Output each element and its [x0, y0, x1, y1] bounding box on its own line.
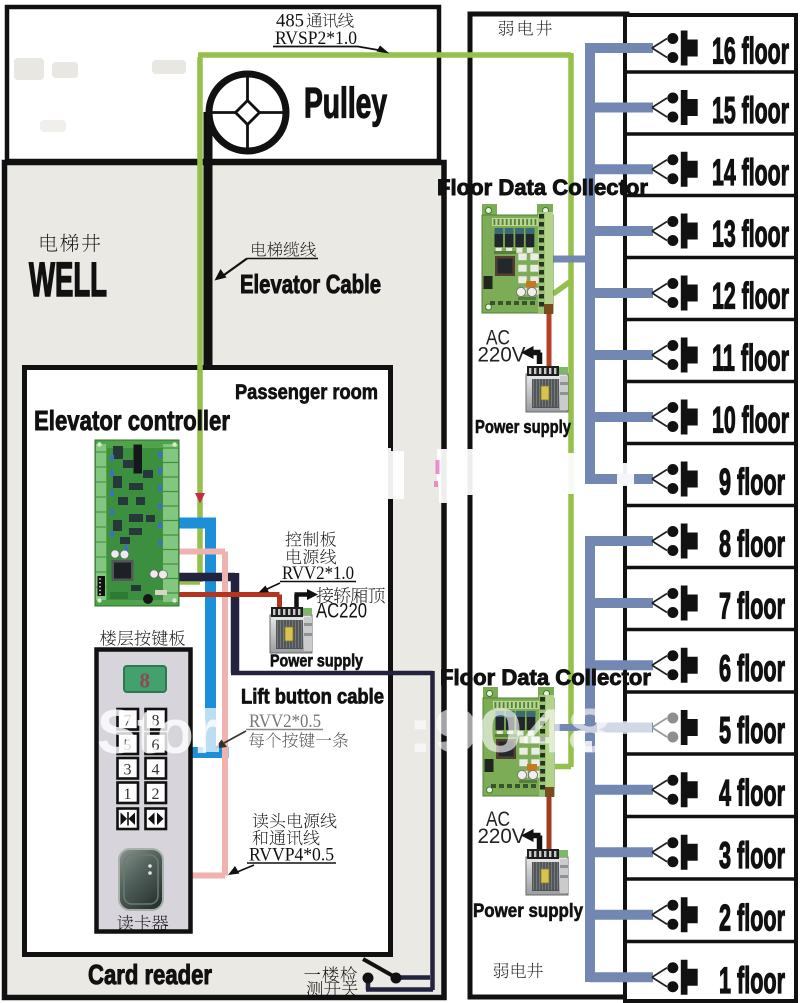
svg-text:WELL: WELL: [29, 254, 107, 307]
svg-text:220V: 220V: [478, 344, 526, 367]
svg-text:Power supply: Power supply: [473, 901, 583, 922]
svg-text:8: 8: [140, 669, 151, 693]
svg-text:6 floor: 6 floor: [719, 648, 785, 689]
svg-text:1 floor: 1 floor: [719, 960, 785, 1001]
svg-text:Power supply: Power supply: [270, 651, 363, 671]
svg-text:14 floor: 14 floor: [712, 152, 789, 193]
svg-text:Passenger room: Passenger room: [235, 380, 378, 404]
svg-text:220V: 220V: [478, 825, 526, 848]
svg-text:8 floor: 8 floor: [719, 524, 785, 565]
svg-text:10 floor: 10 floor: [712, 400, 789, 441]
svg-text:Stor: Stor: [97, 698, 217, 767]
svg-text:16 floor: 16 floor: [712, 31, 789, 72]
svg-text:2 floor: 2 floor: [719, 897, 785, 938]
svg-text:2: 2: [152, 786, 160, 803]
svg-text:Elevator controller: Elevator controller: [34, 405, 230, 436]
svg-text:7 floor: 7 floor: [719, 586, 785, 627]
svg-text:11 floor: 11 floor: [712, 338, 789, 379]
svg-text:Power supply: Power supply: [475, 417, 571, 437]
svg-text:Floor Data Collector: Floor Data Collector: [440, 665, 651, 690]
svg-text:Floor Data Collector: Floor Data Collector: [437, 175, 648, 200]
svg-text:AC220: AC220: [316, 600, 367, 623]
svg-text:13 floor: 13 floor: [712, 214, 789, 255]
svg-text:1: 1: [124, 786, 132, 803]
svg-text:3 floor: 3 floor: [719, 835, 785, 876]
svg-text:Lift button cable: Lift button cable: [241, 685, 384, 709]
svg-text:9 floor: 9 floor: [719, 462, 785, 503]
svg-text:Card reader: Card reader: [88, 959, 212, 990]
svg-text:Elevator Cable: Elevator Cable: [240, 269, 381, 299]
svg-text::9048: :9048: [407, 697, 612, 766]
svg-text:4 floor: 4 floor: [719, 772, 785, 813]
svg-text:15 floor: 15 floor: [712, 90, 789, 131]
svg-text:5 floor: 5 floor: [719, 710, 785, 751]
svg-text:12 floor: 12 floor: [712, 276, 789, 317]
svg-text:Pulley: Pulley: [304, 80, 387, 128]
